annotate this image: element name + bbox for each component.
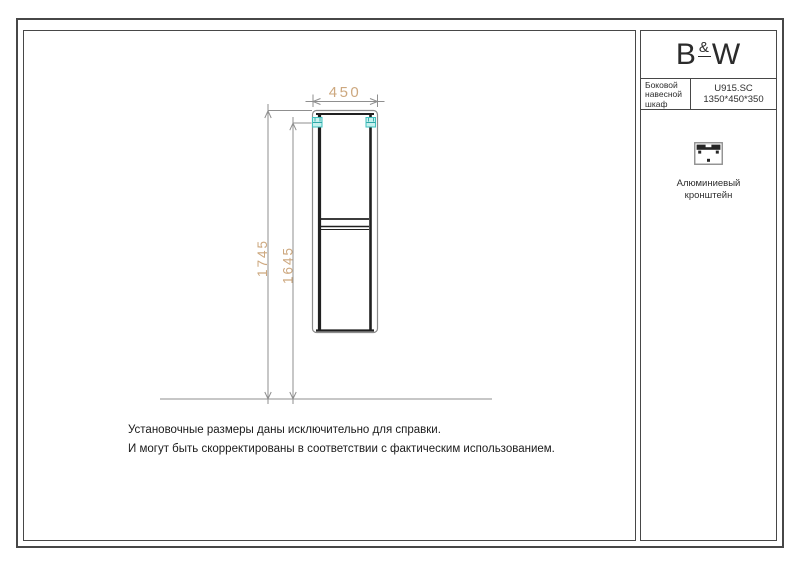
product-code: U915.SC (714, 83, 753, 94)
logo-ampersand: & (698, 40, 711, 57)
reference-note-line1: Установочные размеры даны исключительно … (128, 421, 555, 440)
logo-letter-b: B (676, 40, 697, 70)
product-info-row: Боковой навесной шкаф U915.SC 1350*450*3… (641, 79, 776, 110)
title-block: B&W Боковой навесной шкаф U915.SC 1350*4… (640, 30, 777, 541)
wall-bracket-marker-icon-left (313, 118, 323, 128)
reference-note: Установочные размеры даны исключительно … (128, 421, 555, 458)
product-size: 1350*450*350 (703, 94, 763, 105)
dimension-total-height-value: 1745 (255, 239, 270, 277)
dimension-width-value: 450 (329, 84, 362, 101)
accessory-label: Алюминиевый кронштейн (663, 178, 755, 201)
dimension-bracket-height-value: 1645 (281, 246, 296, 284)
dimension-bracket-height: 1645 (281, 117, 312, 404)
dimension-width: 450 (306, 84, 385, 107)
cabinet-front-view (313, 111, 378, 333)
accessory-section: Алюминиевый кронштейн (641, 142, 776, 201)
reference-note-line2: И могут быть скорректированы в соответст… (128, 440, 555, 459)
product-code-cell: U915.SC 1350*450*350 (691, 79, 776, 109)
brand-logo: B&W (641, 31, 776, 79)
aluminum-bracket-icon (694, 142, 723, 165)
logo-letter-w: W (712, 40, 741, 70)
product-name: Боковой навесной шкаф (641, 79, 691, 109)
wall-bracket-marker-icon-right (366, 118, 376, 128)
